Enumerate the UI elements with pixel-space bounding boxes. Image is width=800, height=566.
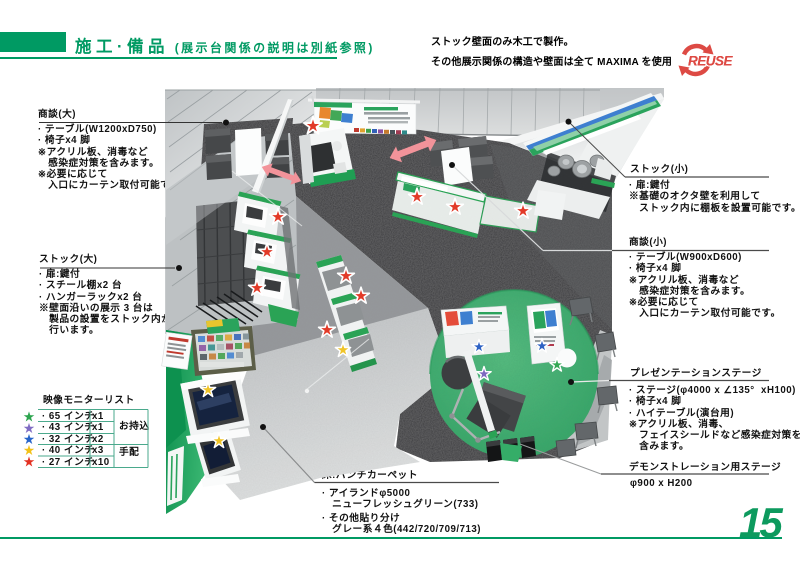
svg-text:REUSE: REUSE [688, 54, 734, 69]
